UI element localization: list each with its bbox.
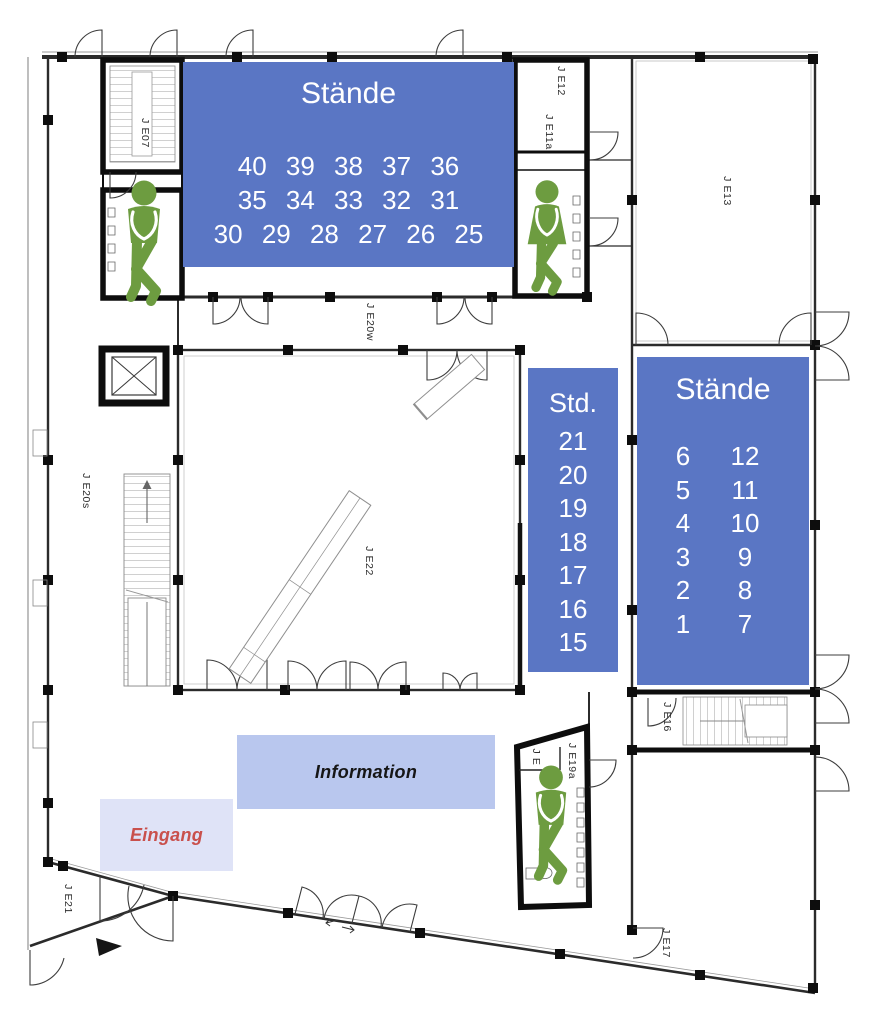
stand-number: 16 [528,593,618,627]
stand-number: 6 [654,440,712,474]
stand-numbers-row: 40 39 38 37 36 [183,149,514,183]
room-label-je17: J E17 [660,928,672,958]
stand-numbers-row: 30 29 28 27 26 25 [183,217,514,251]
room-label-je07: J E07 [139,118,151,148]
stand-number: 17 [528,559,618,593]
stand-number: 21 [528,425,618,459]
entrance-label: Eingang [130,825,203,846]
stands-right-panel: Stände 6 5 4 3 2 1 12 11 10 9 8 7 [637,357,809,685]
stand-number: 3 [654,541,712,575]
stands-top-title: Stände [183,77,514,111]
room-label-je19: J E [530,749,542,766]
stand-number: 15 [528,626,618,660]
stand-number: 18 [528,526,618,560]
room-label-je11a: J E11a [543,114,555,150]
room-label-je20s: J E20s [80,473,92,509]
stand-number: 19 [528,492,618,526]
stands-right-title: Stände [637,373,809,407]
room-label-je13: J E13 [721,176,733,206]
stand-number: 9 [716,541,774,575]
room-label-je19a: J E19a [566,743,578,779]
stands-right-right-column: 12 11 10 9 8 7 [716,440,774,642]
room-label-je20w: J E20w [364,303,376,341]
stands-top-panel: Stände 40 39 38 37 36 35 34 33 32 31 30 … [183,62,514,267]
room-label-je21: J E21 [62,884,74,914]
room-label-je22: J E22 [363,546,375,576]
information-label: Information [315,762,417,783]
stand-number: 4 [654,507,712,541]
stands-top-numbers: 40 39 38 37 36 35 34 33 32 31 30 29 28 2… [183,149,514,251]
room-label-je12: J E12 [555,66,567,96]
room-label-je16: J E16 [661,702,673,732]
stand-number: 20 [528,459,618,493]
stand-number: 12 [716,440,774,474]
stand-number: 8 [716,574,774,608]
stand-number: 11 [716,474,774,508]
stands-right-left-column: 6 5 4 3 2 1 [654,440,712,642]
stand-numbers-row: 35 34 33 32 31 [183,183,514,217]
stands-mid-panel: Std. 21 20 19 18 17 16 15 [528,368,618,672]
entrance-panel: Eingang [100,799,233,871]
stand-number: 1 [654,608,712,642]
stand-number: 5 [654,474,712,508]
stand-number: 2 [654,574,712,608]
information-panel: Information [237,735,495,809]
stand-number: 7 [716,608,774,642]
stands-mid-numbers: 21 20 19 18 17 16 15 [528,425,618,660]
exhibition-floor-plan: J E07 J E12 J E11a J E13 J E20w J E20s J… [0,0,880,1024]
stand-number: 10 [716,507,774,541]
stands-mid-title: Std. [528,388,618,419]
